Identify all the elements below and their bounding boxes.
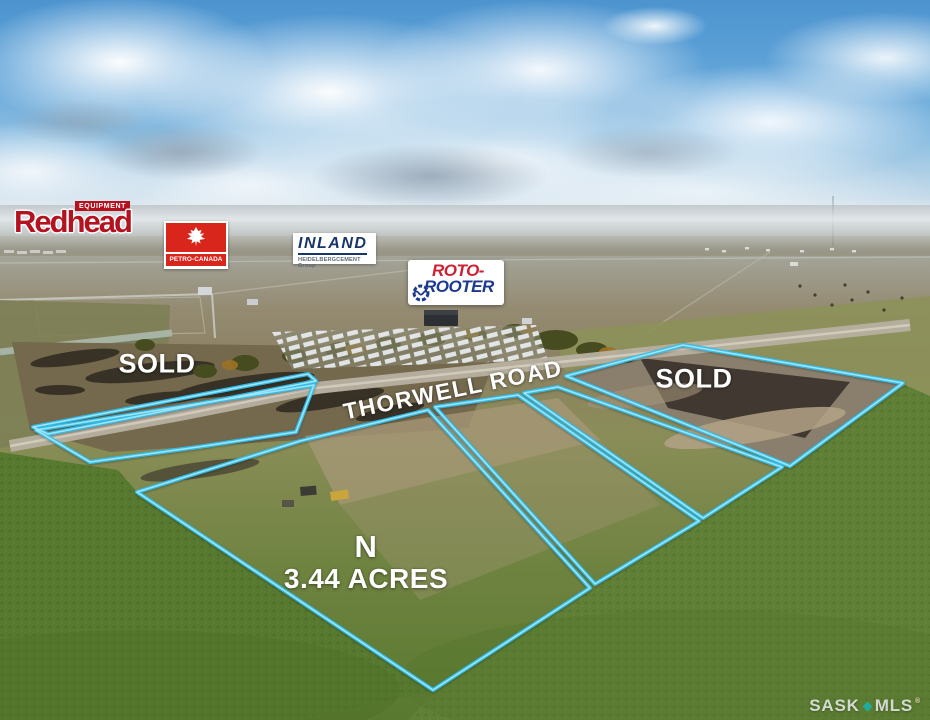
petro-canada-logo: PETRO-CANADA — [164, 221, 228, 269]
inland-subtext: HEIDELBERGCEMENT Group — [298, 257, 371, 269]
inland-wordmark: INLAND — [298, 236, 367, 255]
north-indicator: N — [355, 529, 378, 565]
sask-mls-watermark: SASK MLS ® — [809, 696, 921, 716]
sold-label-right: SOLD — [655, 364, 732, 395]
roto-rooter-logo: ROTO- ROOTER — [408, 260, 504, 305]
redhead-wordmark: Redhead — [14, 204, 131, 240]
diamond-icon — [862, 701, 872, 711]
inland-logo: INLAND HEIDELBERGCEMENT Group — [293, 233, 376, 264]
sold-label-left: SOLD — [118, 349, 195, 380]
acreage-label: 3.44 ACRES — [284, 563, 448, 595]
maple-leaf-icon — [185, 227, 207, 249]
petro-wordmark: PETRO-CANADA — [166, 254, 226, 266]
registered-mark: ® — [915, 698, 921, 705]
cutter-blade-icon — [411, 282, 431, 302]
aerial-listing-photo: EQUIPMENT Redhead PETRO-CANADA INLAND HE… — [0, 0, 930, 720]
watermark-sask: SASK — [809, 696, 859, 716]
redhead-equipment-logo: EQUIPMENT Redhead — [14, 201, 146, 239]
watermark-mls: MLS — [875, 696, 913, 716]
petro-leaf-box — [166, 223, 226, 252]
roto-wordmark-bottom: ROOTER — [424, 278, 504, 296]
